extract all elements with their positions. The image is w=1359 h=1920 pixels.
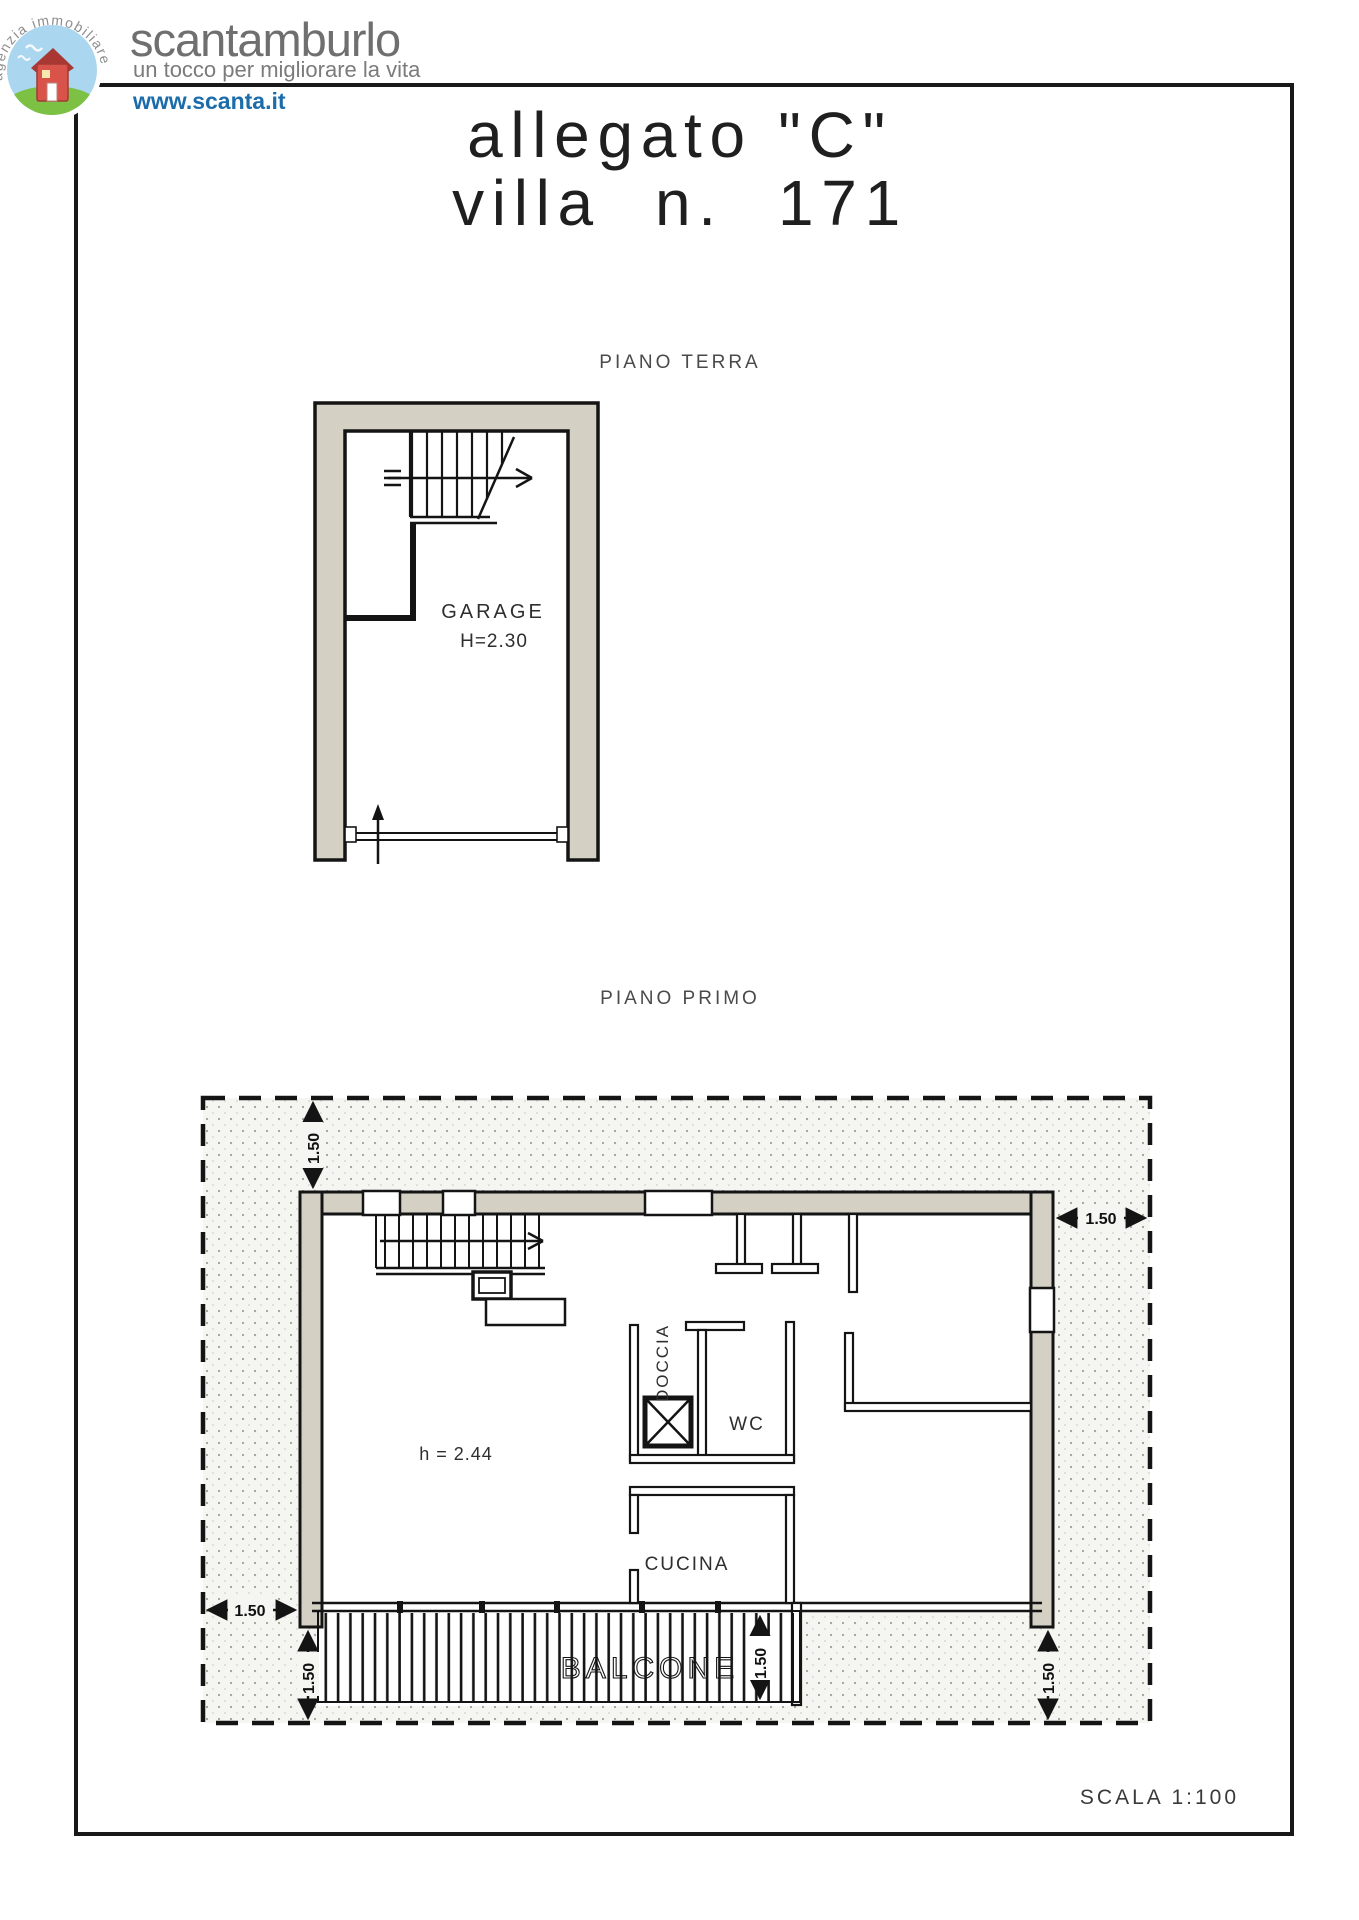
svg-text:1.50: 1.50 [234,1603,265,1620]
kitchen-label: CUCINA [645,1554,730,1575]
garage-door [345,804,568,864]
document-title-line1: allegato "C" [74,98,1286,172]
garage-partition-wall [345,523,416,618]
garage-stairs [384,431,532,523]
brand-tagline: un tocco per migliorare la vita [133,57,420,83]
window-top-2 [443,1191,475,1215]
stairs [376,1214,545,1274]
svg-text:1.50: 1.50 [301,1663,318,1694]
ground-floor-heading: PIANO TERRA [74,352,1286,374]
window-top-1 [363,1191,400,1215]
svg-text:1.50: 1.50 [1041,1663,1058,1694]
window-right [1030,1288,1054,1332]
balcony-label: BALCONE [561,1652,739,1685]
garage-height-label: H=2.30 [460,631,528,652]
garage-room-label: GARAGE [441,601,545,623]
shower-label: DOCCIA [653,1324,672,1402]
ceiling-height-label: h = 2.44 [419,1444,493,1464]
first-floor-heading: PIANO PRIMO [74,988,1286,1010]
document-title-line2: villa n. 171 [74,166,1286,240]
wc-label: WC [729,1414,765,1435]
balcony: BALCONE [318,1611,800,1702]
shower-box [645,1398,691,1446]
scale-note: SCALA 1:100 [1080,1786,1239,1810]
scanned-floorplan-page: agenzia immobiliare scantamburlo un tocc… [0,0,1359,1920]
svg-text:1.50: 1.50 [306,1133,323,1164]
svg-text:1.50: 1.50 [1085,1211,1116,1228]
first-floor-plan: BALCONE 1.50 1.50 1.50 1.50 1.50 [195,1088,1165,1738]
ground-floor-plan: GARAGE H=2.30 [298,396,624,872]
svg-text:1.50: 1.50 [753,1648,770,1679]
window-top-3 [645,1191,712,1215]
